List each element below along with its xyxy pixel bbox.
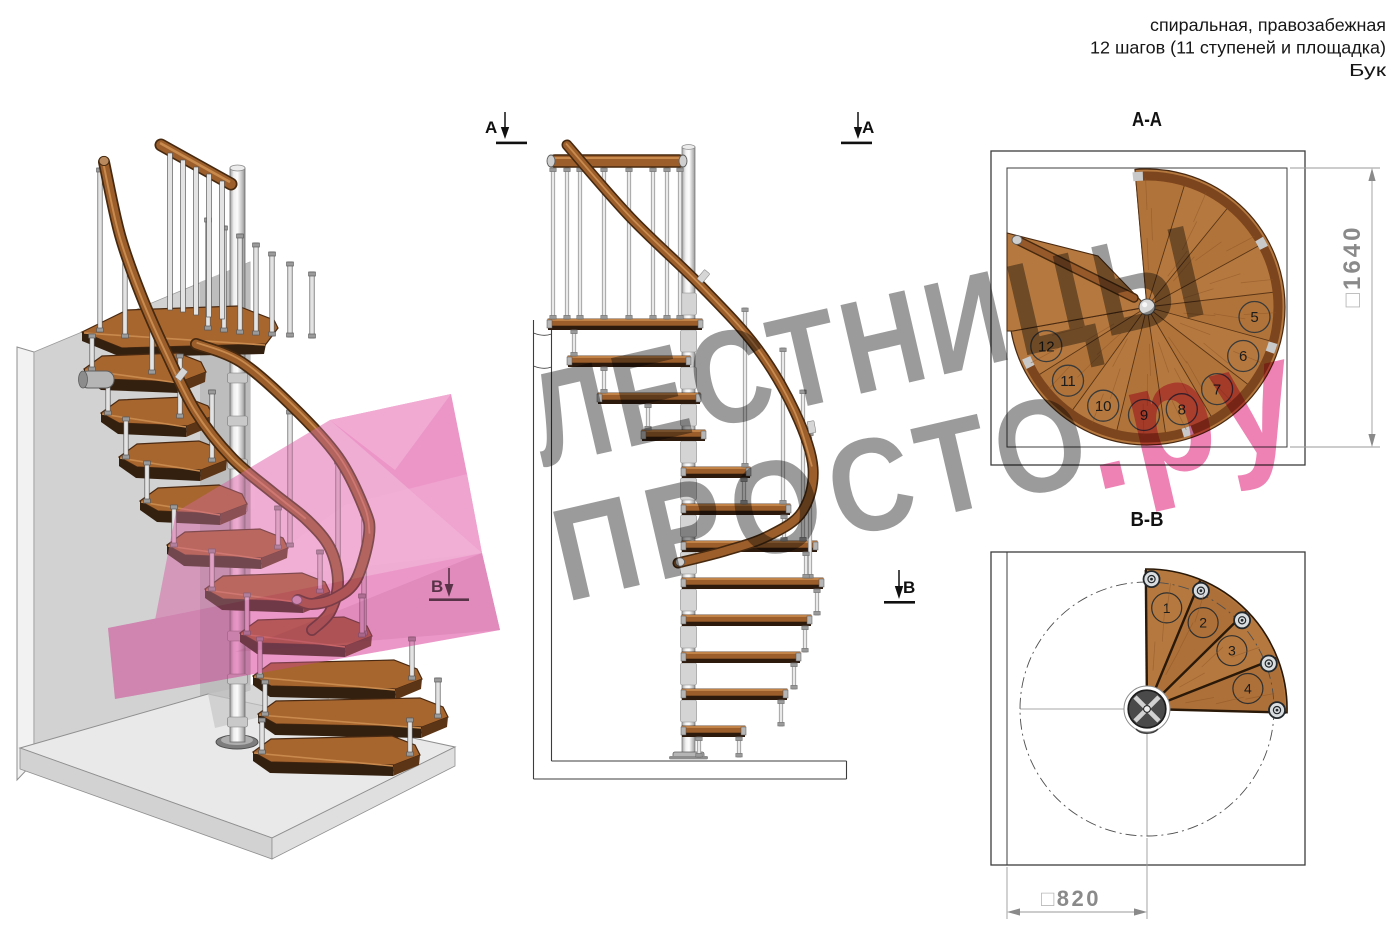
svg-text:□1640: □1640 [1339, 225, 1366, 308]
svg-text:А-А: А-А [1132, 109, 1162, 131]
svg-text:12 шагов (11 ступеней и площад: 12 шагов (11 ступеней и площадка) [1090, 38, 1386, 58]
svg-text:A: A [862, 118, 874, 137]
svg-text:B: B [903, 578, 915, 597]
svg-text:□820: □820 [1041, 886, 1101, 911]
svg-text:A: A [485, 118, 497, 137]
svg-text:Бук: Бук [1349, 60, 1386, 80]
svg-text:4: 4 [1244, 681, 1252, 697]
svg-text:2: 2 [1199, 615, 1207, 631]
svg-text:спиральная, правозабежная: спиральная, правозабежная [1150, 15, 1386, 35]
